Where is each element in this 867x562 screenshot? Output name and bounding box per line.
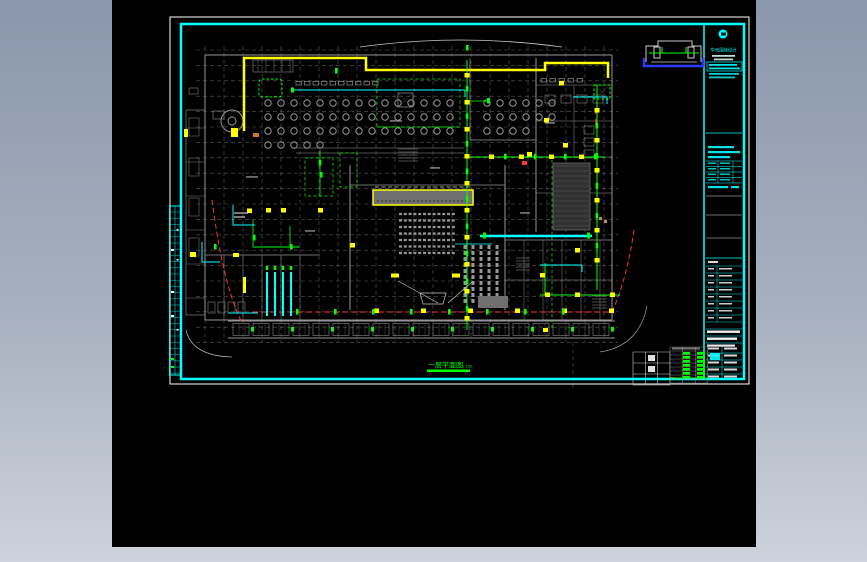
design-firm-logo-text: 华元国际设计 bbox=[710, 47, 737, 54]
drawing-title: 一层平面图 bbox=[428, 362, 463, 370]
floor-plan-shapes bbox=[170, 17, 750, 389]
viewer-stage: 华元国际设计 一层平面图 1:100 bbox=[0, 0, 867, 562]
drawing-scale: 1:100 bbox=[462, 365, 473, 369]
drawing-sheet: 华元国际设计 一层平面图 1:100 bbox=[0, 0, 867, 562]
